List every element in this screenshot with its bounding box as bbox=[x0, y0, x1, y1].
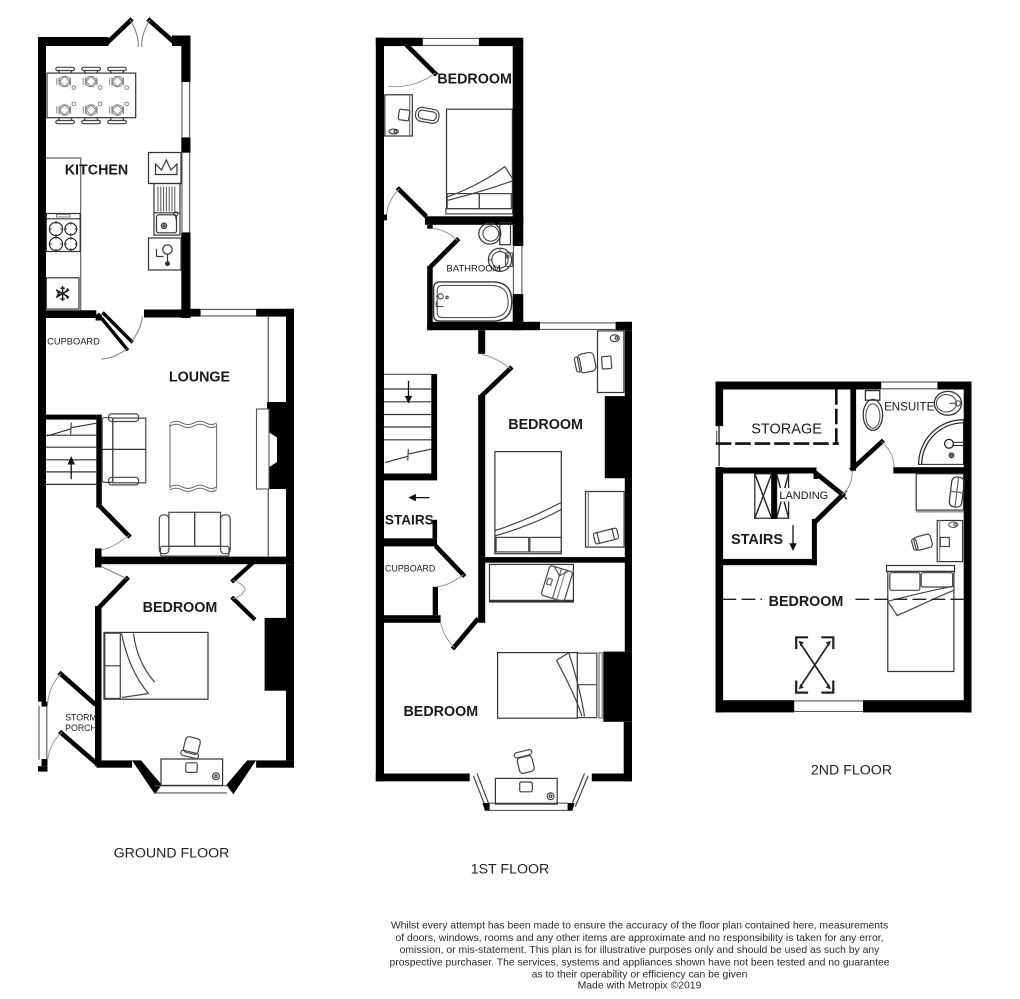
svg-text:BEDROOM: BEDROOM bbox=[403, 704, 478, 720]
svg-text:STAIRS: STAIRS bbox=[731, 532, 783, 548]
svg-text:BEDROOM: BEDROOM bbox=[508, 417, 583, 433]
svg-text:of doors, windows, rooms and a: of doors, windows, rooms and any other i… bbox=[395, 933, 883, 944]
svg-text:PORCH: PORCH bbox=[65, 723, 97, 733]
svg-text:LOUNGE: LOUNGE bbox=[169, 370, 230, 386]
svg-text:LANDING: LANDING bbox=[779, 490, 828, 502]
svg-text:GROUND FLOOR: GROUND FLOOR bbox=[114, 846, 230, 862]
svg-text:Made with Metropix ©2019: Made with Metropix ©2019 bbox=[578, 981, 702, 992]
svg-text:CUPBOARD: CUPBOARD bbox=[385, 563, 435, 573]
svg-text:Whilst every attempt has been: Whilst every attempt has been made to en… bbox=[391, 921, 888, 932]
svg-text:STAIRS: STAIRS bbox=[385, 512, 434, 527]
svg-text:STORAGE: STORAGE bbox=[751, 422, 822, 438]
svg-text:STORM: STORM bbox=[65, 713, 97, 723]
svg-text:1ST FLOOR: 1ST FLOOR bbox=[471, 862, 550, 878]
svg-text:BEDROOM: BEDROOM bbox=[437, 72, 512, 88]
svg-text:as to their operability or eff: as to their operability or efficiency ca… bbox=[532, 970, 748, 981]
svg-text:BEDROOM: BEDROOM bbox=[769, 594, 844, 610]
svg-text:2ND FLOOR: 2ND FLOOR bbox=[811, 763, 892, 779]
svg-text:omission, or mis-statement. Th: omission, or mis-statement. This plan is… bbox=[400, 945, 881, 956]
svg-text:BATHROOM: BATHROOM bbox=[446, 263, 500, 274]
svg-text:BEDROOM: BEDROOM bbox=[143, 600, 218, 616]
svg-text:prospective purchaser. The ser: prospective purchaser. The services, sys… bbox=[389, 957, 889, 968]
svg-text:ENSUITE: ENSUITE bbox=[884, 401, 935, 414]
svg-text:KITCHEN: KITCHEN bbox=[65, 163, 129, 179]
svg-text:CUPBOARD: CUPBOARD bbox=[47, 337, 100, 347]
